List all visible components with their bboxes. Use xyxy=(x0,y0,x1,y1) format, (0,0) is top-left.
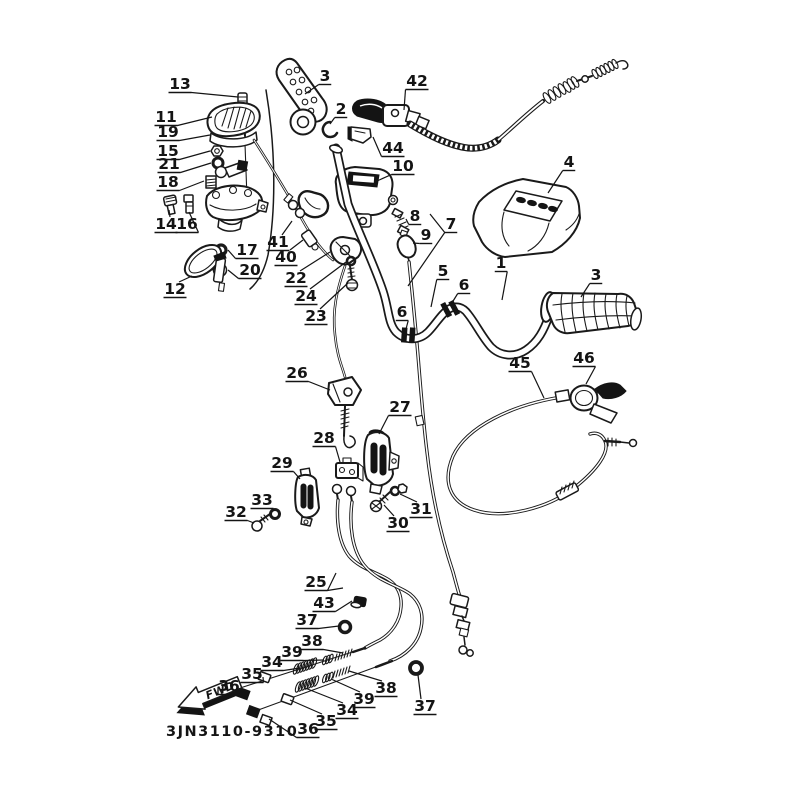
callout-41-16: 41 xyxy=(267,221,293,251)
callout-30-38: 30 xyxy=(384,505,410,532)
svg-text:42: 42 xyxy=(406,72,428,90)
callout-29-35: 29 xyxy=(271,454,301,479)
svg-text:23: 23 xyxy=(305,307,327,325)
handlebar-parts-diagram: FWD 3JN3110-9310 13111915211814161720123… xyxy=(0,0,800,800)
svg-text:13: 13 xyxy=(169,75,191,93)
diagram-page: FWD 3JN3110-9310 13111915211814161720123… xyxy=(0,0,800,800)
svg-text:40: 40 xyxy=(275,248,297,266)
svg-text:5: 5 xyxy=(438,262,449,280)
callout-16-7: 16 xyxy=(176,212,199,233)
callout-20-9: 20 xyxy=(228,261,262,279)
callout-25-40: 25 xyxy=(305,573,344,591)
bracket-screws xyxy=(252,484,407,531)
cable-trunnion-40 xyxy=(301,229,318,250)
svg-text:33: 33 xyxy=(251,491,273,509)
svg-text:22: 22 xyxy=(285,269,307,287)
brake-cables-loop xyxy=(337,500,422,661)
cable-end-barrels xyxy=(333,485,356,503)
callout-45-30: 45 xyxy=(509,354,545,398)
brake-lever-perch xyxy=(207,103,259,136)
svg-text:37: 37 xyxy=(296,611,318,629)
svg-text:21: 21 xyxy=(158,155,180,173)
callout-8-21: 8 xyxy=(406,207,421,225)
starter-lever-46 xyxy=(555,383,626,423)
cable-boot xyxy=(398,230,416,263)
callout-35-46: 35 xyxy=(241,665,264,683)
svg-text:38: 38 xyxy=(301,632,323,650)
svg-text:28: 28 xyxy=(313,429,335,447)
svg-text:32: 32 xyxy=(225,503,247,521)
svg-text:38: 38 xyxy=(375,679,397,697)
svg-text:19: 19 xyxy=(157,123,179,141)
part-number: 3JN3110-9310 xyxy=(166,724,298,740)
handlebar-cover xyxy=(473,179,580,257)
callout-44-14: 44 xyxy=(373,137,405,157)
cable-nut-43 xyxy=(351,596,367,608)
callout-6-26: 6 xyxy=(396,303,409,329)
svg-text:44: 44 xyxy=(382,139,404,157)
callout-27-33: 27 xyxy=(379,398,412,434)
callout-43-41: 43 xyxy=(313,594,353,612)
svg-text:14: 14 xyxy=(155,215,177,233)
callout-28-34: 28 xyxy=(313,429,341,462)
svg-text:1: 1 xyxy=(496,254,507,272)
callout-1-27: 1 xyxy=(495,254,508,300)
clamp-bolts xyxy=(163,195,193,215)
callout-9-22: 9 xyxy=(413,226,432,244)
svg-text:16: 16 xyxy=(176,215,198,233)
svg-text:46: 46 xyxy=(573,349,595,367)
callout-37-53: 37 xyxy=(414,675,437,715)
lever-bracket xyxy=(348,127,371,143)
callout-32-37: 32 xyxy=(225,503,255,523)
svg-text:6: 6 xyxy=(397,303,408,321)
svg-text:9: 9 xyxy=(421,226,432,244)
svg-text:6: 6 xyxy=(459,276,470,294)
svg-text:34: 34 xyxy=(336,701,358,719)
svg-text:39: 39 xyxy=(281,643,303,661)
svg-text:36: 36 xyxy=(218,677,240,695)
grip-end-clip xyxy=(323,122,337,137)
svg-text:31: 31 xyxy=(410,500,432,518)
callout-42-13: 42 xyxy=(404,72,429,110)
svg-text:4: 4 xyxy=(564,153,575,171)
svg-text:25: 25 xyxy=(305,573,327,591)
callout-19-2: 19 xyxy=(157,123,211,141)
callout-18-5: 18 xyxy=(157,173,205,191)
nut-washer-stack xyxy=(206,146,248,188)
svg-text:20: 20 xyxy=(239,261,261,279)
callout-26-32: 26 xyxy=(286,364,331,390)
svg-text:10: 10 xyxy=(392,157,414,175)
svg-text:3: 3 xyxy=(320,67,331,85)
svg-text:27: 27 xyxy=(389,398,411,416)
callout-2-12: 2 xyxy=(330,100,347,124)
svg-text:3: 3 xyxy=(591,266,602,284)
svg-text:29: 29 xyxy=(271,454,293,472)
svg-text:35: 35 xyxy=(241,665,263,683)
svg-text:45: 45 xyxy=(509,354,531,372)
callout-38-43: 38 xyxy=(301,632,344,653)
callout-33-36: 33 xyxy=(251,491,275,511)
throttle-rod-cable xyxy=(410,59,628,149)
callout-36-47: 36 xyxy=(218,677,241,695)
svg-text:12: 12 xyxy=(164,280,186,298)
callout-6-25: 6 xyxy=(450,276,470,306)
svg-text:26: 26 xyxy=(286,364,308,382)
svg-text:24: 24 xyxy=(295,287,317,305)
svg-text:17: 17 xyxy=(236,241,258,259)
lever-bracket-body xyxy=(206,185,268,231)
svg-text:18: 18 xyxy=(157,173,179,191)
svg-text:30: 30 xyxy=(387,514,409,532)
callout-37-42: 37 xyxy=(296,611,340,629)
svg-text:43: 43 xyxy=(313,594,335,612)
callout-46-31: 46 xyxy=(573,349,596,384)
cable-bracket-27 xyxy=(364,429,399,494)
right-grip xyxy=(539,291,643,333)
svg-text:36: 36 xyxy=(297,720,319,738)
svg-text:7: 7 xyxy=(446,215,457,233)
svg-text:2: 2 xyxy=(336,100,347,118)
callout-12-10: 12 xyxy=(164,276,193,298)
callout-3-29: 3 xyxy=(581,266,602,297)
callout-17-8: 17 xyxy=(228,241,259,259)
callout-5-24: 5 xyxy=(431,262,449,307)
svg-text:37: 37 xyxy=(414,697,436,715)
callout-13-0: 13 xyxy=(169,75,239,97)
svg-text:34: 34 xyxy=(261,653,283,671)
svg-text:8: 8 xyxy=(410,207,421,225)
